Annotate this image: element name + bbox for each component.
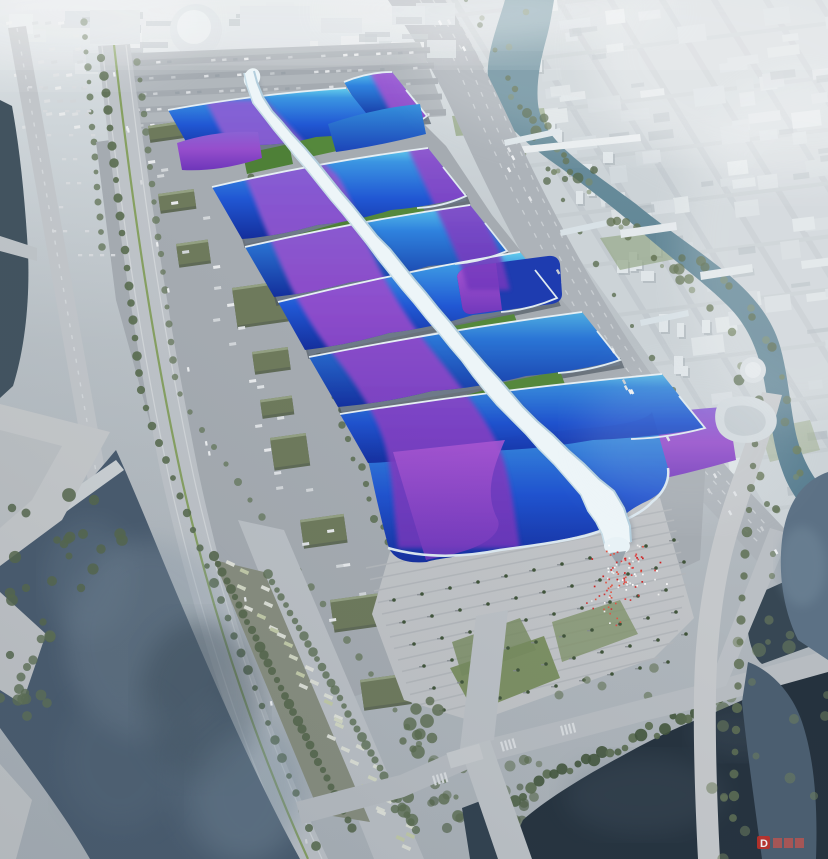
svg-text:D: D xyxy=(760,838,768,850)
